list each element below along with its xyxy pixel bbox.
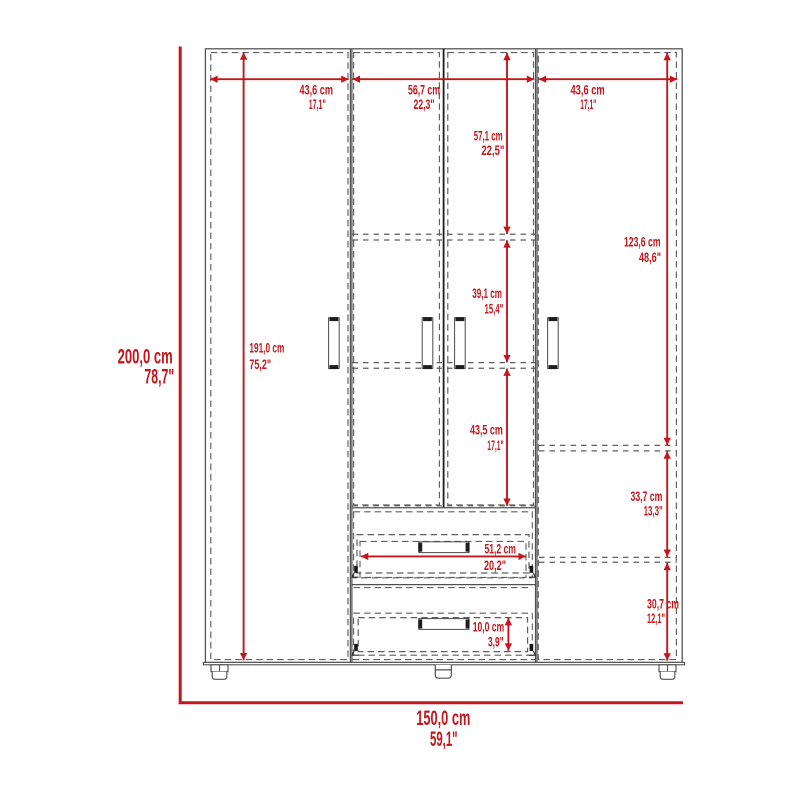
svg-text:17,1": 17,1" — [580, 96, 596, 112]
svg-text:22,5": 22,5" — [481, 142, 504, 158]
svg-text:20,2": 20,2" — [484, 557, 506, 573]
svg-text:12,1": 12,1" — [647, 610, 665, 626]
svg-text:48,6": 48,6" — [639, 249, 661, 265]
svg-text:17,1": 17,1" — [487, 437, 503, 453]
svg-text:59,1": 59,1" — [430, 728, 458, 751]
svg-text:43,5 cm: 43,5 cm — [470, 422, 503, 438]
svg-text:123,6 cm: 123,6 cm — [624, 233, 661, 249]
svg-text:51,2 cm: 51,2 cm — [484, 541, 516, 557]
svg-text:13,3": 13,3" — [644, 503, 663, 519]
svg-text:57,1 cm: 57,1 cm — [474, 127, 503, 143]
svg-text:150,0 cm: 150,0 cm — [416, 707, 470, 730]
svg-text:75,2": 75,2" — [249, 356, 271, 372]
svg-text:22,3": 22,3" — [414, 96, 435, 112]
svg-text:10,0 cm: 10,0 cm — [473, 619, 505, 635]
svg-text:15,4": 15,4" — [485, 301, 504, 317]
svg-text:17,1": 17,1" — [309, 96, 326, 112]
svg-text:191,0 cm: 191,0 cm — [249, 340, 284, 356]
svg-text:39,1 cm: 39,1 cm — [472, 285, 502, 301]
svg-text:78,7": 78,7" — [144, 365, 174, 388]
svg-text:3,9": 3,9" — [488, 633, 504, 649]
